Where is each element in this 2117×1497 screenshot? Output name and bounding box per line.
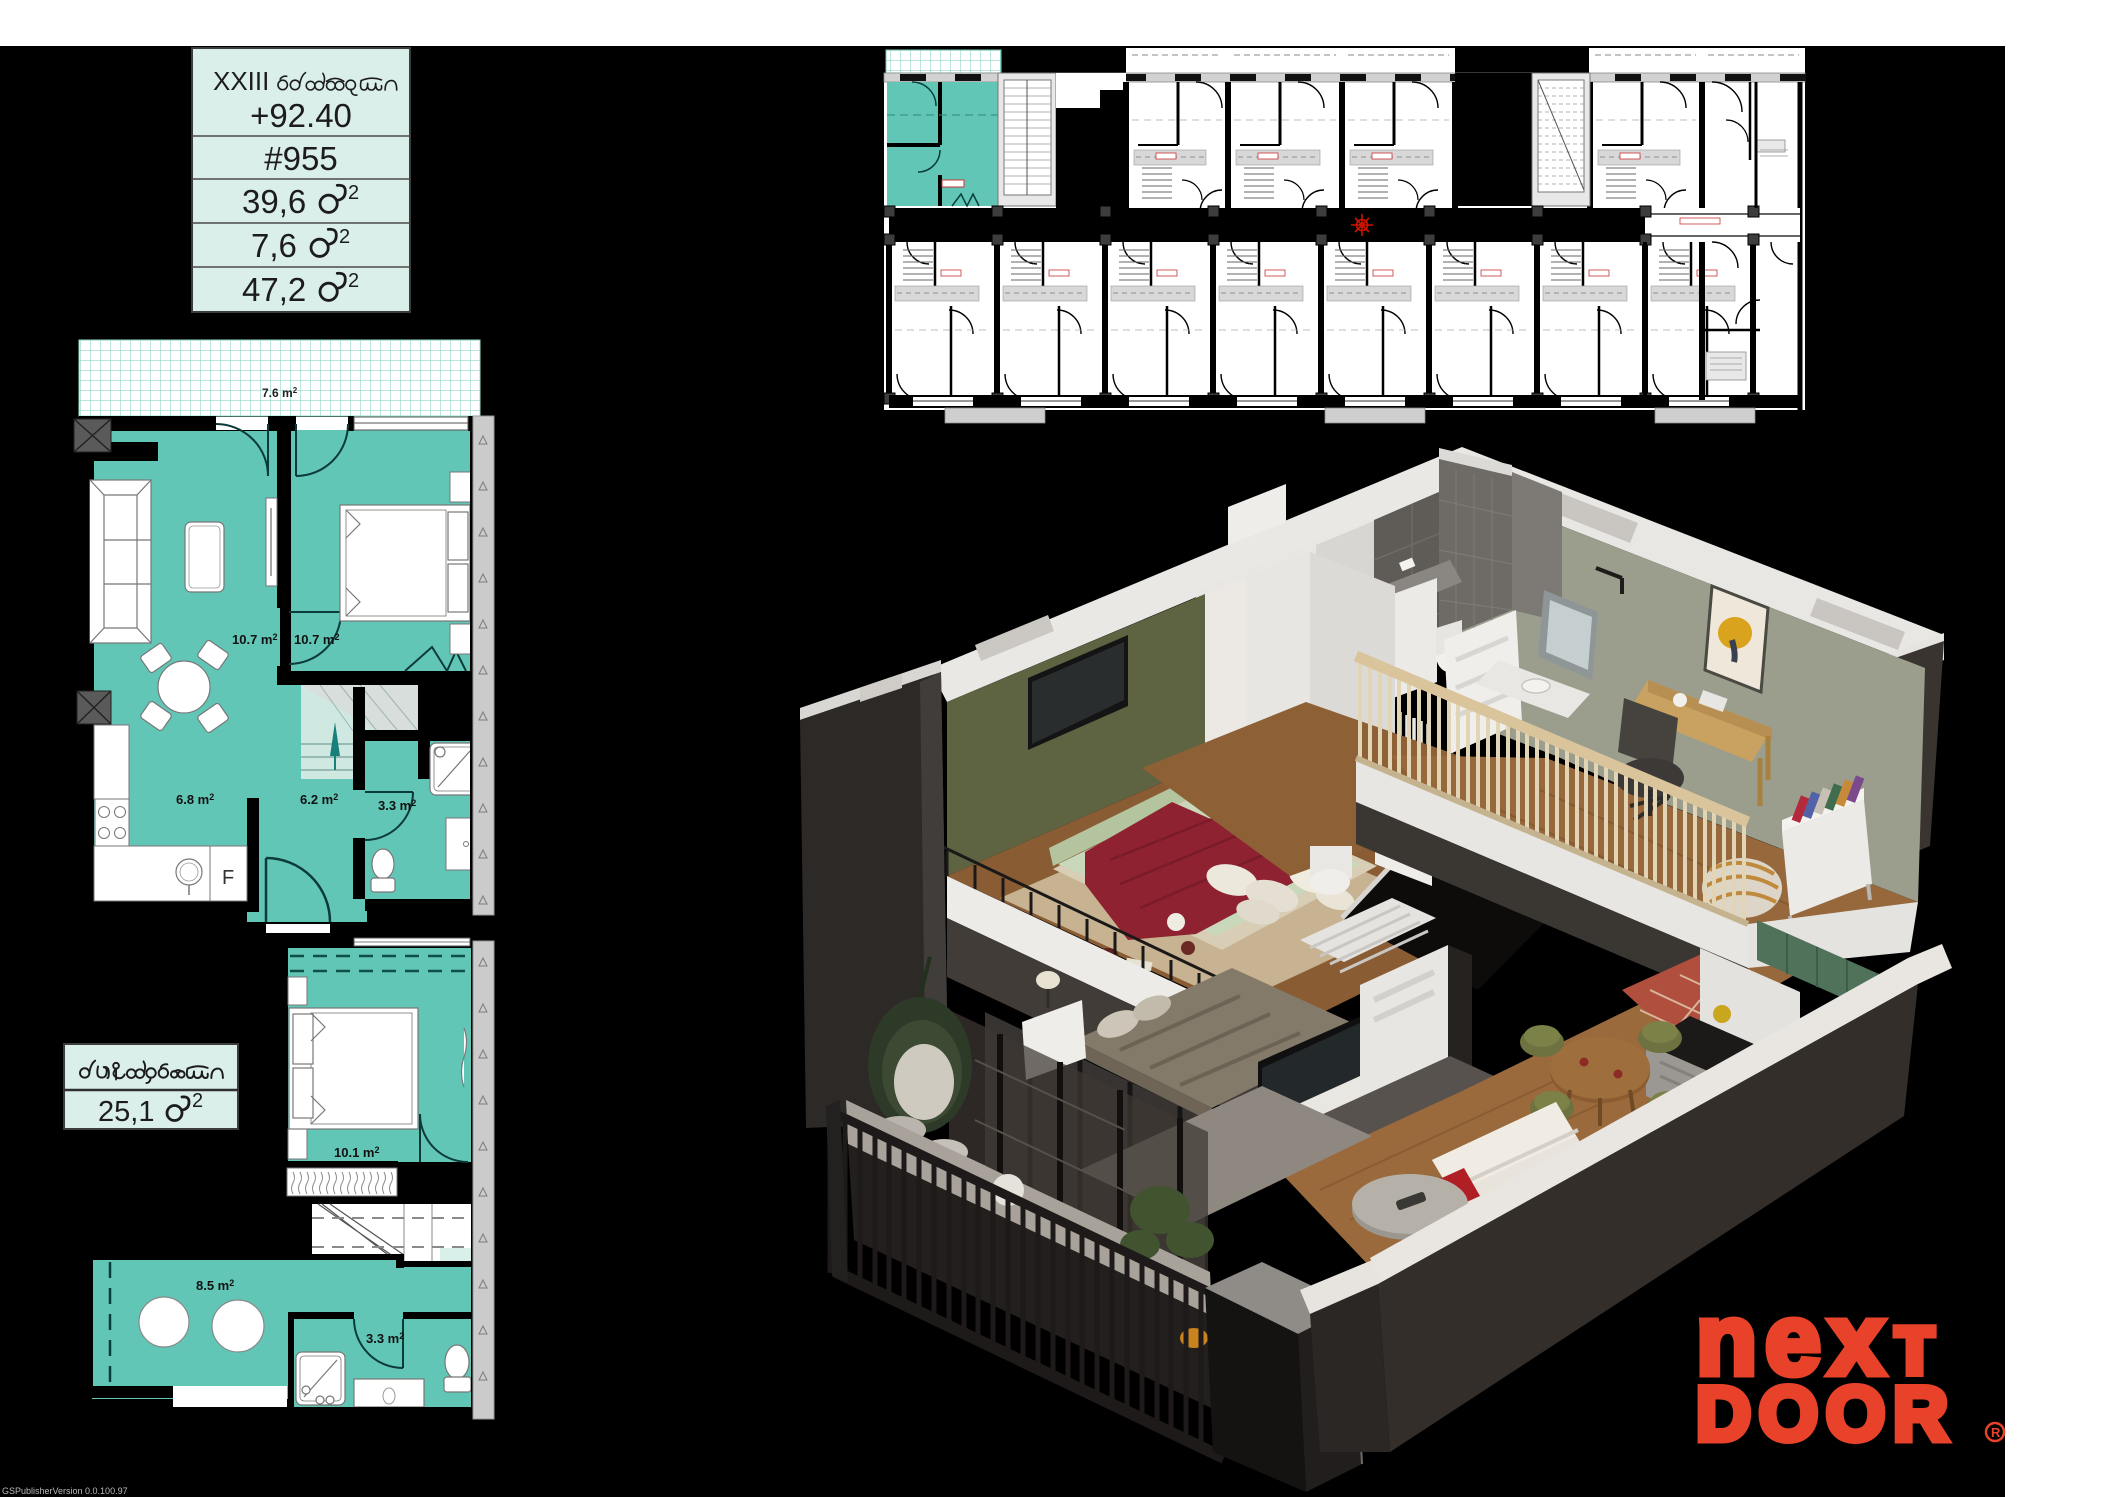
- svg-text:2: 2: [192, 1090, 203, 1112]
- svg-text:10.7 m2: 10.7 m2: [294, 632, 340, 647]
- svg-text:3.3 m2: 3.3 m2: [366, 1331, 404, 1346]
- svg-text:+92.40: +92.40: [250, 97, 352, 134]
- svg-text:47,2: 47,2: [242, 271, 306, 308]
- svg-text:6.2 m2: 6.2 m2: [300, 792, 338, 807]
- svg-text:6.8 m2: 6.8 m2: [176, 792, 214, 807]
- svg-text:R: R: [1991, 1425, 2001, 1440]
- svg-text:10.7 m2: 10.7 m2: [232, 632, 278, 647]
- svg-text:F: F: [222, 867, 234, 889]
- svg-text:2: 2: [339, 226, 350, 248]
- svg-text:25,1: 25,1: [98, 1096, 154, 1128]
- svg-text:XXIII: XXIII: [213, 66, 269, 96]
- svg-text:#955: #955: [264, 140, 337, 177]
- svg-text:3.3 m2: 3.3 m2: [378, 798, 416, 813]
- svg-text:8.5 m2: 8.5 m2: [196, 1278, 234, 1293]
- svg-text:7,6: 7,6: [251, 227, 297, 264]
- svg-text:10.1 m2: 10.1 m2: [334, 1145, 380, 1160]
- svg-text:DOOR: DOOR: [1696, 1372, 1956, 1457]
- svg-text:7.6 m2: 7.6 m2: [262, 386, 298, 400]
- svg-text:2: 2: [348, 270, 359, 292]
- svg-text:39,6: 39,6: [242, 183, 306, 220]
- svg-text:2: 2: [348, 182, 359, 204]
